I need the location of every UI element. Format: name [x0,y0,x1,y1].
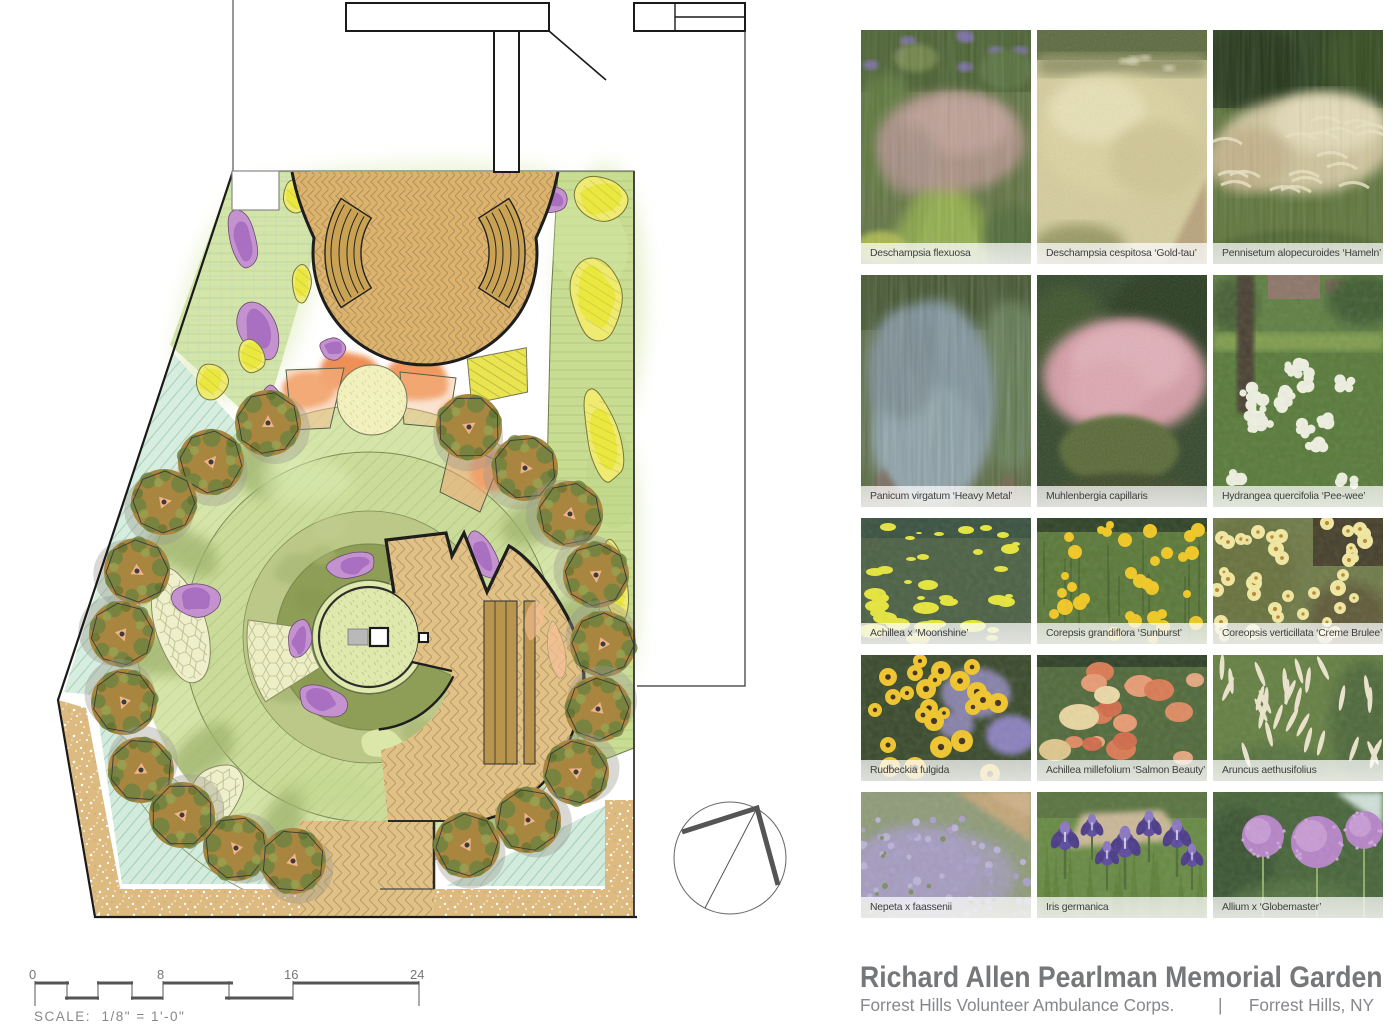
svg-text:24: 24 [410,967,424,982]
svg-text:16: 16 [284,967,298,982]
svg-text:8: 8 [157,967,164,982]
svg-text:0: 0 [29,967,36,982]
svg-text:SCALE: 1/8" = 1'-0": SCALE: 1/8" = 1'-0" [34,1009,185,1024]
